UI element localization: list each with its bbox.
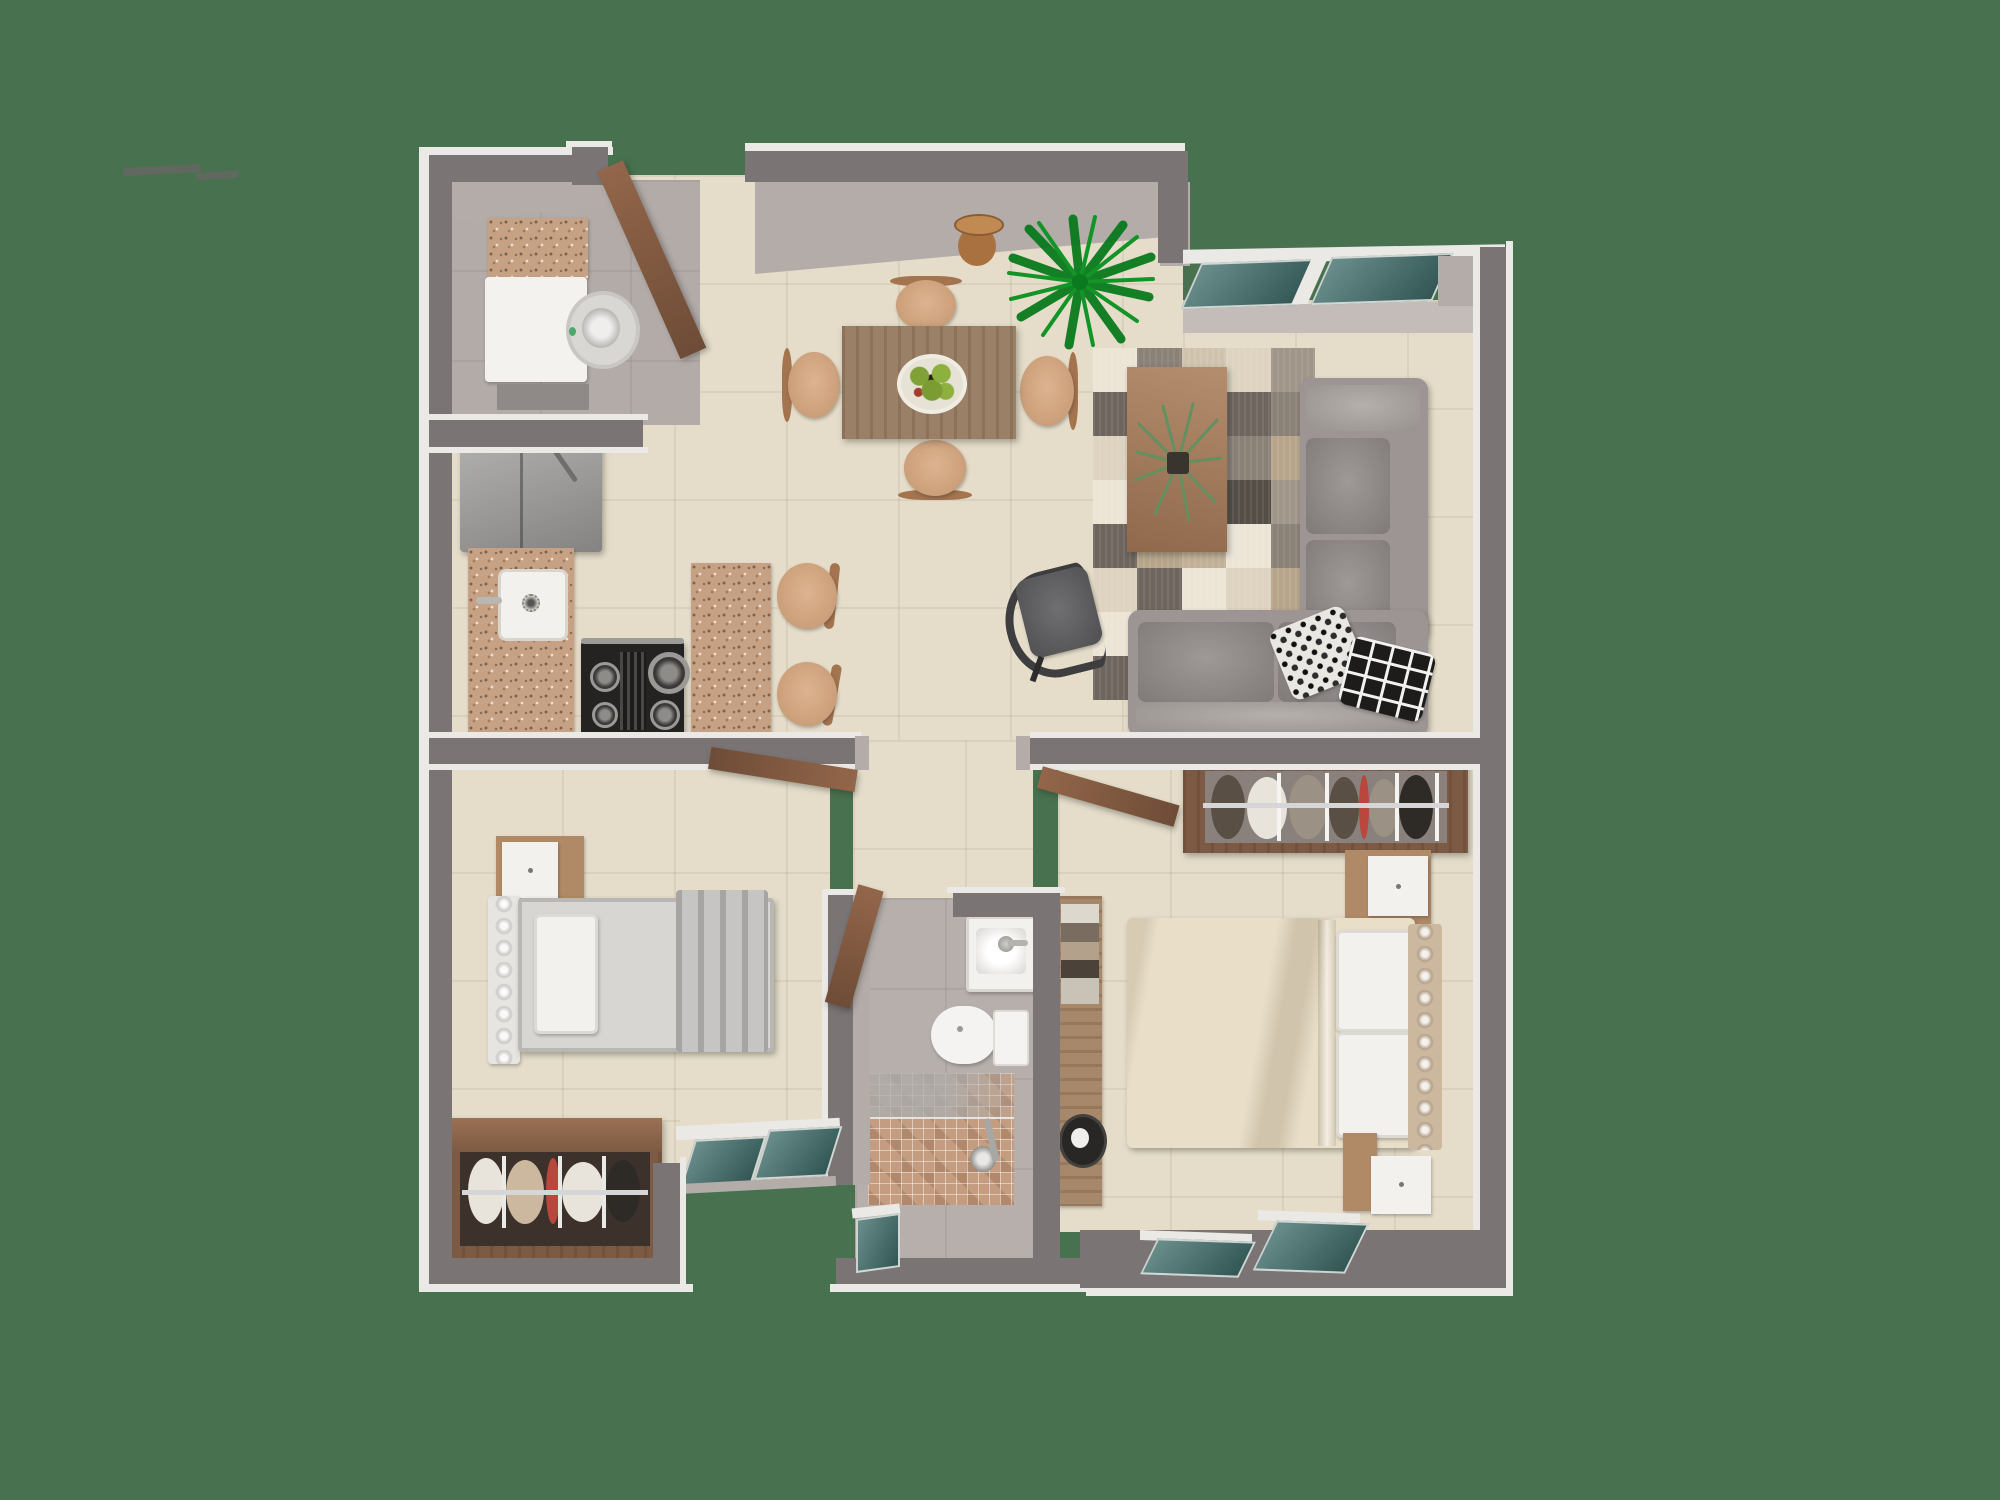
vase-rim — [954, 214, 1004, 236]
laundry-counter — [488, 218, 588, 278]
shower-glass-reflection — [868, 1073, 1014, 1119]
master-bed-pillow — [1336, 930, 1416, 1032]
wardrobe — [448, 1118, 662, 1260]
rug-patch — [1226, 392, 1271, 437]
sofa-armrest — [1306, 385, 1420, 431]
wall-divider-laundry — [429, 420, 643, 447]
stool-seat — [777, 563, 837, 629]
fruit-bowl — [897, 354, 967, 414]
master-bed-pillow — [1336, 1032, 1416, 1138]
nightstand-knob — [528, 868, 533, 873]
floorplan-render — [0, 0, 2000, 1500]
wall-trim — [419, 147, 429, 1290]
wall-trim — [680, 1157, 686, 1288]
stove-burner — [648, 652, 690, 694]
stove-grill — [620, 652, 646, 730]
wall-trim — [745, 143, 1185, 151]
render-artifact — [123, 164, 201, 176]
wall-end-face — [855, 736, 869, 770]
left-bed-pillow — [534, 914, 598, 1034]
chair-seat — [1020, 356, 1074, 426]
vanity-basin — [976, 928, 1026, 974]
wall-trim — [1506, 241, 1513, 1294]
sink-faucet — [476, 597, 502, 604]
master-headboard — [1408, 924, 1442, 1150]
bar-stool — [777, 660, 847, 730]
window-bath — [856, 1213, 900, 1273]
dining-chair — [1018, 350, 1080, 434]
chair-seat — [788, 352, 840, 418]
wardrobe-top-surface — [448, 1118, 662, 1152]
wall-ne-connector — [1158, 151, 1188, 263]
stool-seat — [777, 662, 837, 726]
wall-nook-bottom — [429, 1258, 680, 1284]
sofa-back-strip — [1392, 432, 1426, 638]
stove-front-rail — [581, 638, 684, 644]
wardrobe-rail — [462, 1190, 648, 1195]
toilet-tank — [993, 1010, 1029, 1066]
window-living — [1310, 253, 1453, 305]
wall-trim — [419, 1284, 693, 1292]
rug-patch — [1226, 480, 1271, 525]
wall-trim — [1030, 764, 1480, 770]
wall-trim — [830, 1284, 1118, 1292]
decor-vase — [954, 214, 1000, 266]
chair-seat — [896, 280, 956, 330]
dining-chair — [782, 346, 840, 424]
stove-burner — [650, 700, 680, 730]
sofa-seat-cushion — [1138, 622, 1274, 702]
palm-plant — [1003, 213, 1157, 351]
wall-trim — [1086, 1288, 1513, 1296]
left-bed-headboard — [488, 896, 520, 1064]
towel-stack — [1061, 904, 1099, 1004]
sofa-seat-cushion — [1306, 438, 1390, 534]
wall-bath-top — [953, 893, 1060, 917]
rug-patch — [1182, 568, 1227, 613]
left-bed-blanket — [676, 890, 768, 1052]
dining-chair — [896, 438, 974, 502]
office-chair — [1004, 564, 1104, 682]
wall-end-face — [1016, 736, 1030, 770]
laundry-shelf — [497, 384, 589, 410]
washer-indicator — [569, 327, 576, 336]
render-artifact — [196, 171, 238, 181]
toilet — [931, 1004, 1029, 1068]
chair-seat — [904, 440, 966, 496]
closet — [1183, 761, 1468, 853]
toilet-bowl — [931, 1006, 997, 1064]
rug-patch — [1226, 568, 1271, 613]
wall-trim — [1473, 252, 1480, 1290]
rug-patch — [1226, 436, 1271, 481]
toilet-button — [957, 1026, 963, 1032]
master-bed-sheet-fold — [1318, 920, 1336, 1146]
rug-patch — [1226, 524, 1271, 569]
nightstand-knob — [1399, 1182, 1404, 1187]
wall-entry-top — [745, 151, 1183, 182]
wall-bath-right — [1033, 917, 1060, 1258]
wall-mid-right — [1030, 738, 1480, 764]
stove-burner — [592, 702, 618, 728]
washer-drum-inner — [582, 308, 620, 348]
hat-top — [1071, 1128, 1089, 1148]
window-master — [1140, 1238, 1256, 1277]
wall-corner-face — [1438, 256, 1474, 306]
rug-patch — [1226, 348, 1271, 393]
rug-patch — [1137, 568, 1182, 613]
wall-east — [1480, 247, 1506, 1290]
closet-rail — [1203, 803, 1449, 808]
dining-chair — [888, 276, 964, 330]
wall-west — [429, 155, 452, 1282]
vanity-faucet-arm — [1008, 940, 1028, 946]
bar-counter — [691, 563, 771, 738]
floor-hallway — [853, 740, 1033, 900]
bar-stool — [777, 561, 847, 633]
sink-drain — [522, 594, 540, 612]
nightstand-knob — [1396, 884, 1401, 889]
closet-garment — [1329, 777, 1359, 839]
closet-garment — [1247, 777, 1287, 839]
coffee-table-plant — [1133, 402, 1223, 524]
stove-burner — [590, 662, 620, 692]
wall-trim — [424, 447, 648, 453]
